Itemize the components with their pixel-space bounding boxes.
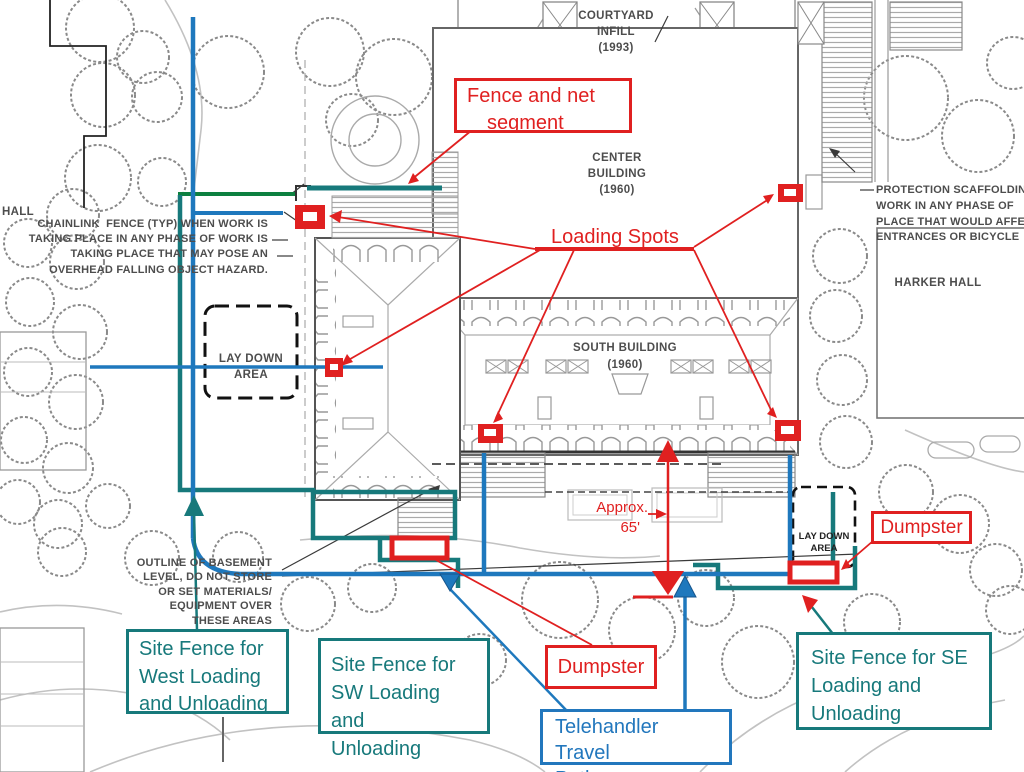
laydown-se-label: LAY DOWNAREA	[799, 531, 850, 555]
basement-outline-note: OUTLINE OF BASEMENTLEVEL, DO NOT STOREOR…	[114, 556, 272, 628]
telehandler-path-callout: Telehandler TravelPath	[540, 709, 732, 765]
protection-scaffolding-note: PROTECTION SCAFFOLDINWORK IN ANY PHASE O…	[876, 183, 1024, 246]
dumpster-sw-callout: Dumpster	[545, 645, 657, 689]
dumpster-marker-sw	[392, 538, 447, 558]
center-building-label: CENTERBUILDING(1960)	[588, 150, 646, 198]
loading-spot-marker-south-right	[775, 420, 801, 441]
site-fence-se-callout: Site Fence for SELoading andUnloading	[796, 632, 992, 730]
dumpster-se-callout: Dumpster	[871, 511, 972, 544]
dumpster-marker-se	[790, 563, 837, 582]
site-fence-sw-callout: Site Fence forSW Loading andUnloading	[318, 638, 490, 734]
loading-spot-marker-west	[325, 358, 343, 377]
south-building-label: SOUTH BUILDING(1960)	[573, 340, 677, 374]
teal-callout-arrows	[184, 495, 833, 634]
loading-spot-marker-nw	[295, 205, 325, 229]
site-logistics-plan: COURTYARDINFILL(1993) CENTERBUILDING(196…	[0, 0, 1024, 772]
courtyard-infill-label: COURTYARDINFILL(1993)	[578, 8, 654, 56]
loading-spots-underline	[535, 247, 694, 251]
chainlink-fence-note: CHAINLINK FENCE (TYP) WHEN WORK ISTAKING…	[28, 217, 268, 278]
harker-hall-label: HARKER HALL	[895, 277, 982, 289]
laydown-west-label: LAY DOWNAREA	[219, 351, 283, 383]
site-fence-west-callout: Site Fence forWest Loadingand Unloading	[126, 629, 289, 714]
approx-65ft-label: Approx.65'	[584, 498, 648, 538]
loading-spot-marker-ne	[778, 184, 803, 202]
west-fence-arrowhead	[184, 495, 204, 516]
fence-net-segment-callout: Fence and netsegment	[454, 78, 632, 133]
loading-spot-marker-south-left	[478, 424, 503, 443]
